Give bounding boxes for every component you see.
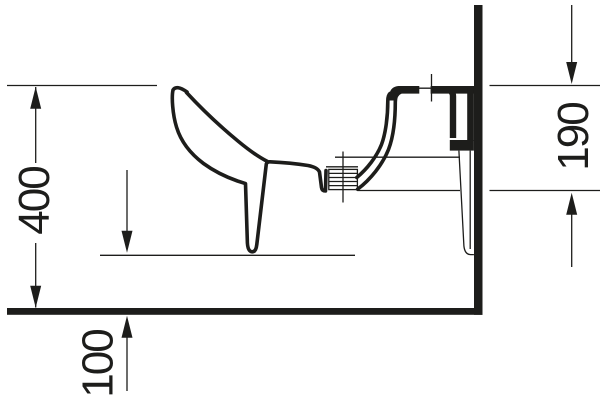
centerline-cross-rim (417, 74, 447, 102)
bidet-body (172, 85, 474, 254)
dimension-400: 400 (7, 86, 157, 308)
mounting-bar (467, 88, 474, 142)
arrowhead-down-icon (122, 231, 133, 253)
arrowhead-up-icon (566, 193, 577, 215)
dimension-label-190: 190 (549, 103, 598, 171)
hidden-edge-lines (100, 157, 460, 255)
arrowhead-down-icon (30, 286, 41, 308)
technical-drawing-page: 400 190 100 (0, 0, 600, 410)
ceramic-back-edge (446, 90, 453, 138)
bidet-outline (172, 88, 326, 252)
dimension-190: 190 (490, 5, 600, 267)
back-lower-edge (459, 151, 474, 255)
bowl-back-outer-curve (358, 93, 400, 190)
arrowhead-up-icon (30, 87, 41, 109)
bowl-back-inner-curve (357, 94, 390, 178)
bowl-inner-front-edge (187, 93, 268, 162)
wall-line (474, 5, 483, 315)
bidet-side-elevation-drawing: 400 190 100 (0, 0, 600, 410)
dimension-label-100: 100 (74, 330, 123, 398)
floor-line (7, 308, 483, 315)
arrowhead-down-icon (566, 62, 577, 84)
dimension-label-400: 400 (10, 167, 59, 235)
wall-and-floor (7, 5, 483, 315)
dimension-100: 100 (74, 170, 133, 398)
faucet-hole-gap (419, 85, 430, 94)
arrowhead-up-icon (122, 316, 133, 338)
mounting-step (450, 140, 474, 151)
